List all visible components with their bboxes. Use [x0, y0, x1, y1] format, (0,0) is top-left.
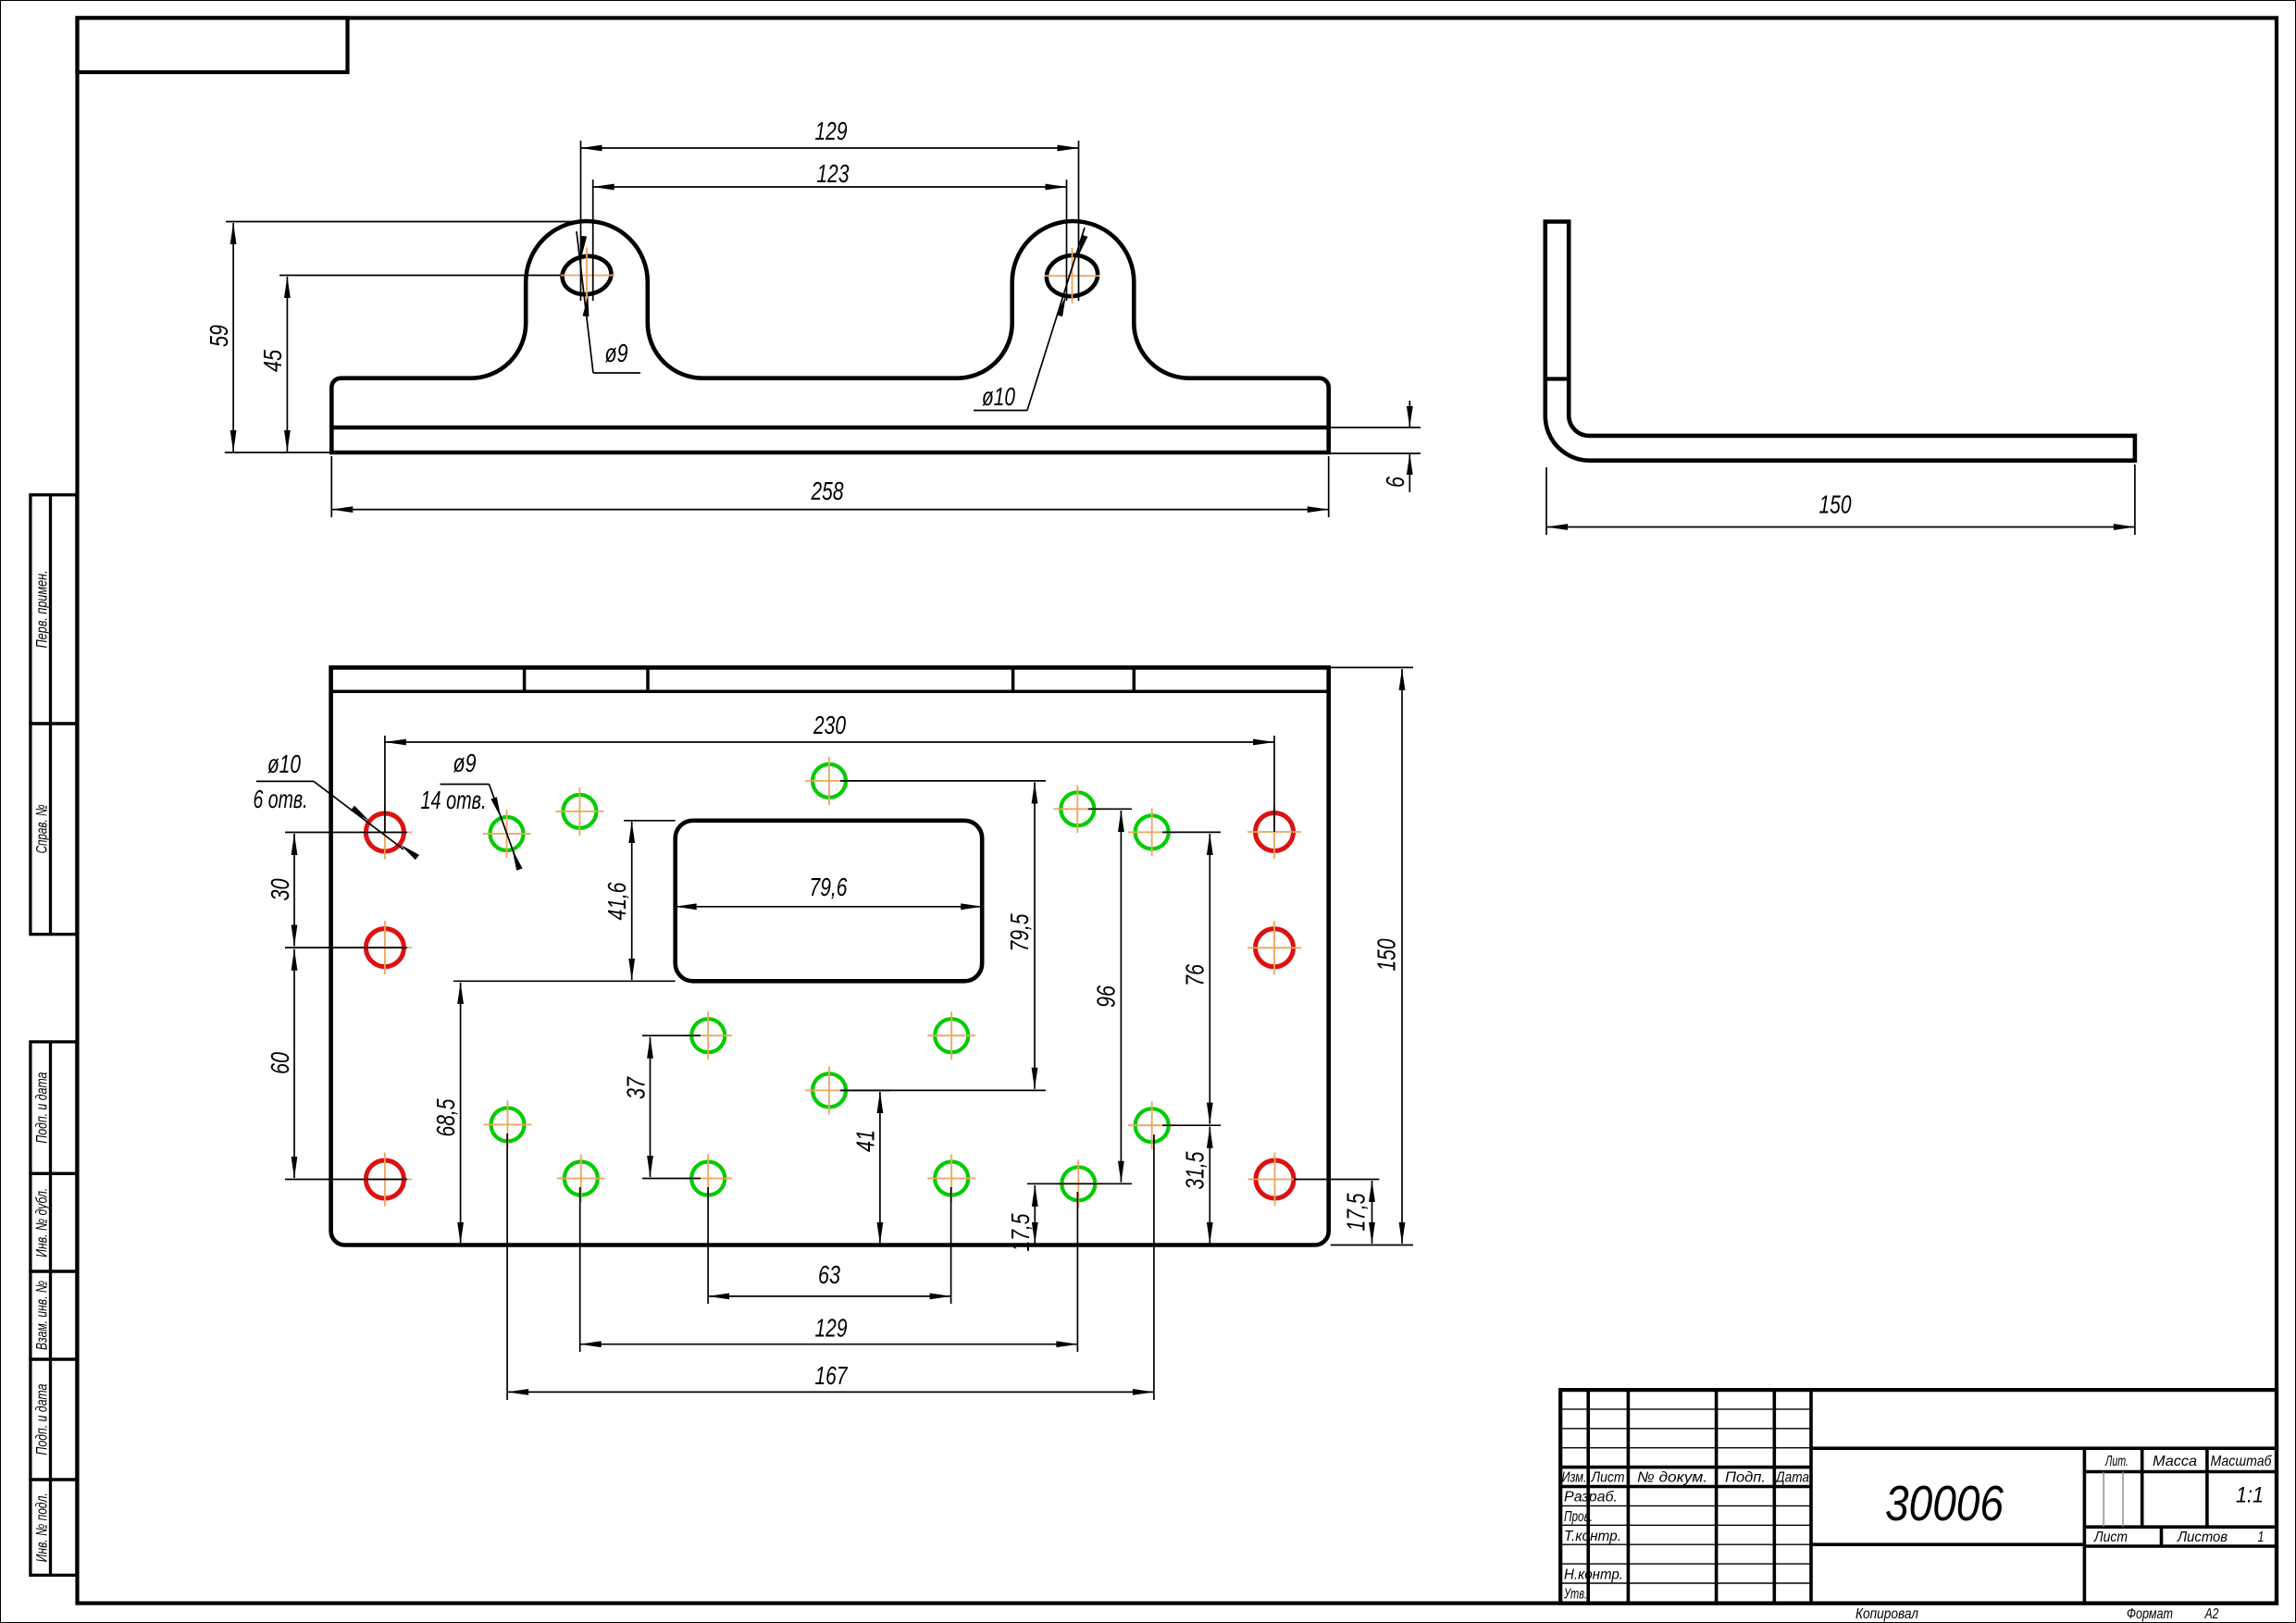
svg-text:Н.контр.: Н.контр.	[1564, 1567, 1623, 1583]
svg-text:ø10: ø10	[982, 382, 1015, 411]
svg-text:96: 96	[1091, 985, 1120, 1008]
svg-text:79,5: 79,5	[1005, 913, 1034, 951]
svg-text:Формат: Формат	[2127, 1606, 2173, 1622]
svg-text:14 отв.: 14 отв.	[421, 786, 487, 814]
svg-text:Лист: Лист	[1591, 1470, 1625, 1486]
svg-text:Подп. и дата: Подп. и дата	[32, 1072, 50, 1144]
svg-text:63: 63	[818, 1260, 840, 1289]
svg-text:Изм.: Изм.	[1562, 1470, 1587, 1486]
svg-text:6: 6	[1381, 477, 1409, 488]
svg-text:30: 30	[266, 878, 294, 900]
svg-text:Инв. № дубл.: Инв. № дубл.	[32, 1188, 50, 1258]
svg-text:167: 167	[815, 1361, 849, 1390]
svg-text:150: 150	[1371, 938, 1400, 971]
svg-text:129: 129	[815, 1313, 848, 1342]
svg-text:Лит.: Лит.	[2104, 1454, 2128, 1469]
svg-text:Лист: Лист	[2093, 1530, 2128, 1545]
svg-text:45: 45	[258, 350, 287, 372]
svg-text:№ докум.: № докум.	[1637, 1470, 1707, 1486]
svg-text:129: 129	[815, 117, 848, 145]
svg-text:Дата: Дата	[1774, 1470, 1809, 1486]
svg-text:60: 60	[266, 1052, 294, 1074]
svg-text:17,5: 17,5	[1341, 1193, 1370, 1231]
svg-text:Справ. №: Справ. №	[32, 804, 50, 853]
svg-text:17,5: 17,5	[1006, 1213, 1035, 1251]
svg-text:59: 59	[205, 325, 233, 347]
svg-text:Листов: Листов	[2177, 1530, 2228, 1545]
svg-text:30006: 30006	[1885, 1476, 2004, 1531]
svg-text:Подп. и дата: Подп. и дата	[33, 1384, 51, 1456]
svg-text:76: 76	[1180, 964, 1209, 986]
svg-text:Пров.: Пров.	[1564, 1509, 1593, 1525]
svg-text:Инв. № подл.: Инв. № подл.	[32, 1493, 50, 1562]
svg-text:1:1: 1:1	[2236, 1482, 2264, 1507]
svg-text:Разраб.: Разраб.	[1564, 1490, 1618, 1505]
svg-text:Т.контр.: Т.контр.	[1564, 1529, 1621, 1544]
svg-text:150: 150	[1819, 489, 1852, 518]
svg-text:79,6: 79,6	[810, 873, 848, 901]
svg-text:1: 1	[2258, 1530, 2265, 1545]
svg-text:123: 123	[817, 159, 850, 188]
svg-text:230: 230	[813, 711, 846, 739]
svg-text:ø9: ø9	[453, 749, 477, 777]
svg-text:6 отв.: 6 отв.	[254, 785, 308, 813]
svg-text:А2: А2	[2204, 1606, 2219, 1622]
svg-text:Подп.: Подп.	[1725, 1470, 1766, 1486]
svg-text:68,5: 68,5	[431, 1098, 460, 1136]
svg-text:Взам. инв. №: Взам. инв. №	[33, 1281, 51, 1350]
svg-text:Копировал: Копировал	[1855, 1606, 1918, 1622]
svg-text:ø10: ø10	[267, 750, 301, 778]
svg-text:Утв.: Утв.	[1563, 1587, 1587, 1603]
svg-text:Масса: Масса	[2153, 1454, 2197, 1469]
svg-text:41: 41	[850, 1130, 879, 1152]
svg-text:31,5: 31,5	[1180, 1151, 1209, 1189]
svg-text:37: 37	[621, 1076, 650, 1099]
svg-text:Масштаб: Масштаб	[2211, 1454, 2273, 1469]
svg-text:258: 258	[811, 477, 844, 505]
svg-text:41,6: 41,6	[602, 882, 631, 920]
svg-text:Перв. примен.: Перв. примен.	[33, 570, 51, 648]
svg-text:ø9: ø9	[605, 339, 628, 367]
